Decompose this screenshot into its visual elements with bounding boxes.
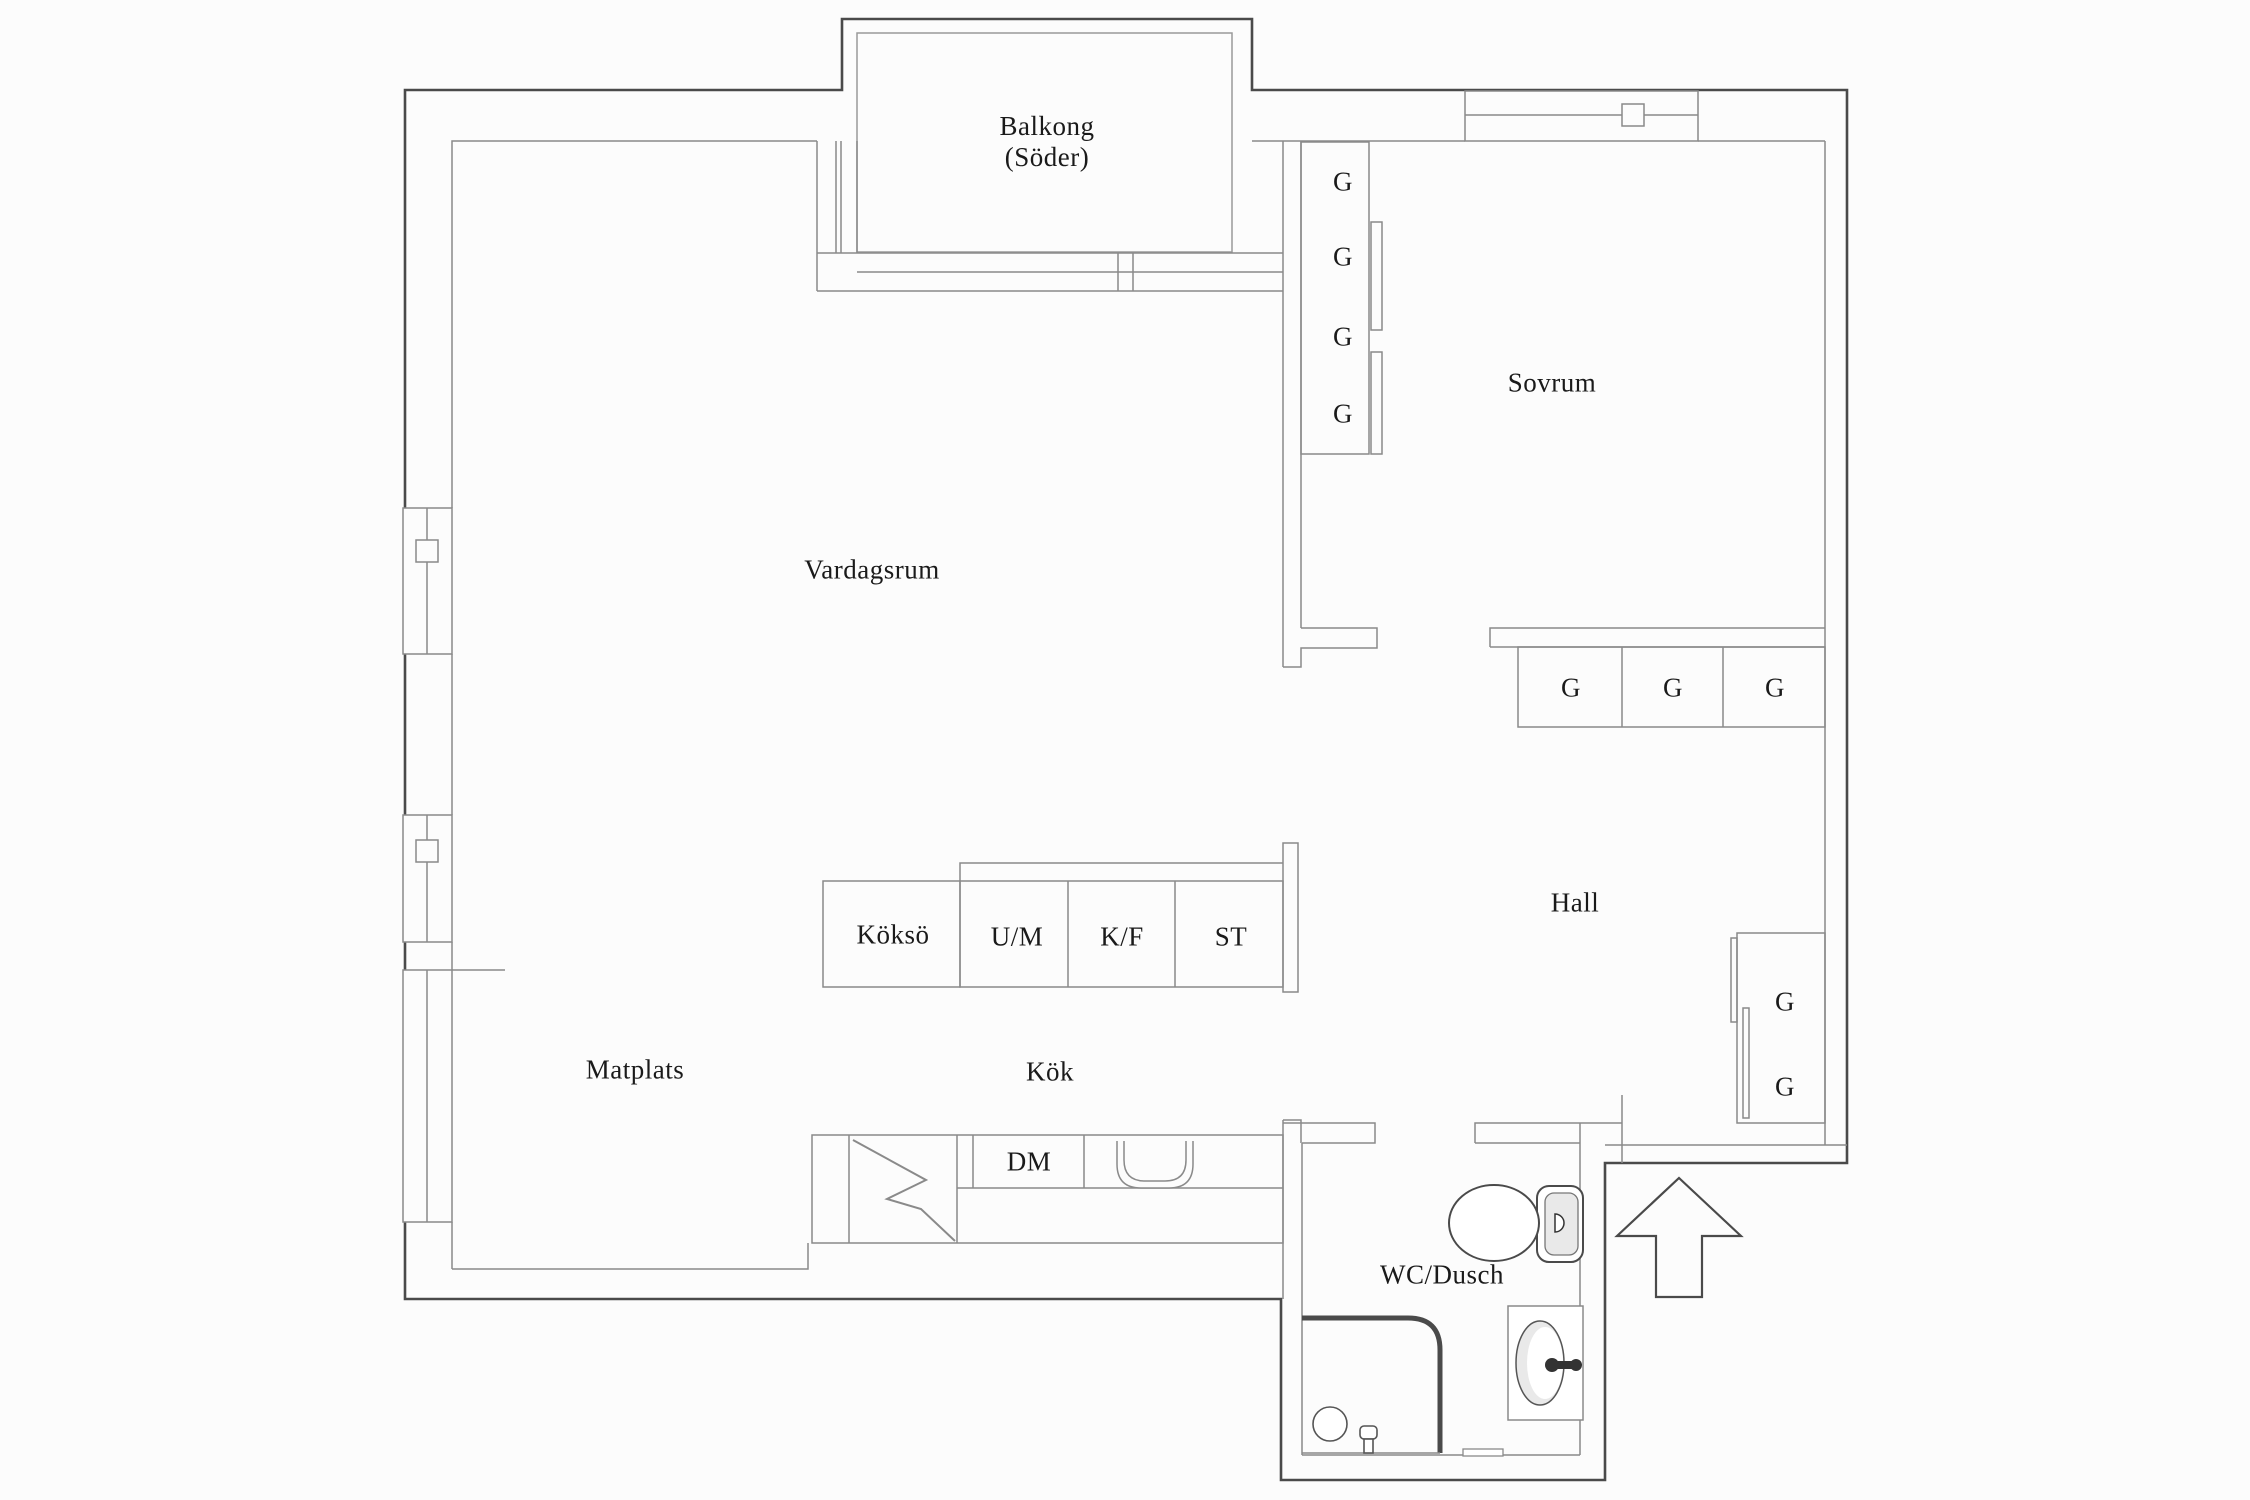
toilet-icon [1449,1185,1583,1262]
inner-walls [452,141,1847,1455]
wardrobe-label: G [1333,167,1353,198]
window-left-middle [403,815,452,942]
wardrobe-label: G [1775,987,1795,1018]
window-left-upper [403,508,452,654]
shower-icon [1302,1318,1440,1453]
wardrobe-label: G [1561,673,1581,704]
stove-icon [853,1140,955,1241]
wardrobe-label: G [1663,673,1683,704]
wardrobe-label: G [1333,322,1353,353]
wardrobe-label: G [1765,673,1785,704]
appliance-label-kf: K/F [1100,922,1144,953]
room-label-sovrum: Sovrum [1508,368,1597,399]
outer-walls [405,19,1847,1480]
floorplan-drawing [0,0,2250,1500]
kitchen-sink-icon [1117,1141,1193,1188]
entrance-arrow-icon [1617,1178,1741,1297]
wardrobe-label: G [1333,399,1353,430]
room-label-wc-dusch: WC/Dusch [1380,1260,1504,1291]
room-label-kok: Kök [1026,1057,1074,1088]
wardrobe-label: G [1775,1072,1795,1103]
window-left-lower [403,970,505,1222]
room-label-hall: Hall [1551,888,1600,919]
appliance-label-st: ST [1215,922,1248,953]
room-label-balkong: Balkong (Söder) [1000,111,1095,173]
balkong-line1: Balkong [1000,111,1095,141]
floorplan-canvas: Balkong (Söder) Sovrum Vardagsrum Hall K… [0,0,2250,1500]
door-threshold [1463,1449,1503,1456]
window-top-right [1465,91,1698,141]
wardrobe-label: G [1333,242,1353,273]
room-label-matplats: Matplats [586,1055,685,1086]
balkong-line2: (Söder) [1005,142,1089,172]
appliance-label-um: U/M [991,922,1044,953]
room-label-vardagsrum: Vardagsrum [804,555,939,586]
bathroom-sink-icon [1508,1306,1583,1420]
room-label-kokso: Köksö [856,920,929,951]
appliance-label-dm: DM [1007,1147,1052,1178]
